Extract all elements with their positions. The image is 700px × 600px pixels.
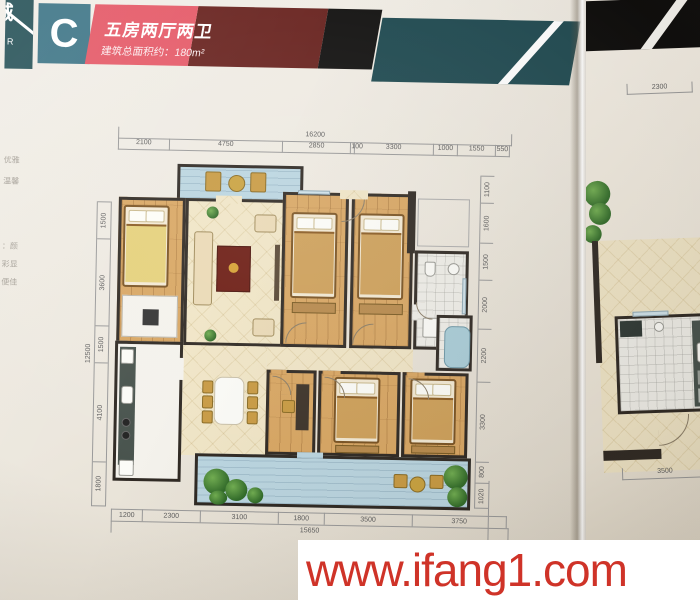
plan-title: 五房两厅两卫 — [103, 15, 196, 42]
chair — [393, 474, 407, 488]
margin-note: ：颜 — [2, 240, 18, 251]
dim-label: 1550 — [458, 144, 496, 157]
dim-label: 4100 — [93, 363, 108, 462]
dim-label: 15650 — [300, 527, 320, 534]
dim-label: 800 — [476, 463, 489, 483]
left-page-content: 城 R C 五房两厅两卫 建筑总面积约：180m² — [0, 0, 586, 600]
window — [298, 190, 330, 195]
watermark: www.ifang1.com — [298, 540, 700, 600]
room-kitchen — [112, 341, 183, 482]
dim-right-segments: 1100 1600 1500 2000 2200 3300 800 1020 — [474, 176, 494, 509]
dim-right-page-top: 2300 — [626, 82, 692, 95]
right-page: 2300 3500 — [586, 0, 700, 600]
washer — [119, 460, 134, 476]
unit-letter: C — [49, 11, 79, 57]
tv-cabinet — [274, 245, 280, 301]
ac-platform — [417, 198, 470, 247]
band-stripe — [631, 0, 694, 52]
unit-letter-block: C — [38, 3, 91, 64]
rug — [292, 302, 336, 314]
rug — [335, 445, 379, 454]
round-table — [228, 175, 245, 192]
dim-label: 1800 — [279, 512, 325, 525]
chair — [250, 172, 266, 192]
margin-note: 温馨 — [3, 175, 19, 186]
dim-label: 1500 — [479, 243, 493, 280]
plant — [447, 487, 467, 507]
plant — [589, 202, 612, 225]
balcony-door-gap — [216, 196, 242, 204]
dim-label: 4750 — [169, 139, 283, 153]
dim-label: 3300 — [354, 142, 433, 156]
plant — [225, 479, 247, 501]
plan-subtitle: 建筑总面积约：180m² — [100, 43, 192, 60]
dim-label: 2300 — [143, 509, 201, 522]
room-balcony-bottom — [194, 453, 471, 510]
door-gap — [323, 371, 341, 376]
chair — [202, 410, 213, 423]
wall — [407, 191, 416, 253]
table-decor — [229, 263, 239, 273]
header-band: C 五房两厅两卫 建筑总面积约：180m² — [37, 3, 578, 93]
dining-table — [214, 377, 245, 426]
door-gap — [297, 452, 323, 458]
plant — [207, 206, 219, 218]
room-bathroom-2 — [436, 315, 473, 372]
chair — [202, 395, 213, 408]
hallway — [267, 347, 413, 373]
brand-logo-icon: 城 R — [4, 0, 33, 69]
round-table — [409, 476, 425, 492]
kitchen-sink — [121, 386, 133, 404]
dim-label: 1500 — [97, 201, 111, 239]
plant — [443, 465, 467, 489]
fridge — [121, 349, 134, 364]
dim-label: 2850 — [283, 141, 352, 154]
band-pink: 五房两厅两卫 建筑总面积约：180m² — [85, 4, 199, 66]
chair — [247, 396, 258, 409]
door-gap — [407, 372, 425, 377]
dim-label: 3600 — [95, 239, 110, 326]
room-kitchen-right — [615, 313, 700, 414]
dim-label: 1800 — [92, 462, 106, 506]
kitchen-counter — [118, 347, 136, 465]
rug — [411, 445, 455, 454]
desk — [296, 384, 310, 430]
rug — [359, 303, 403, 315]
dim-right-page-bottom: 3500 — [622, 465, 700, 480]
chair — [202, 380, 213, 393]
dim-label: 3300 — [476, 383, 491, 463]
chair — [282, 400, 295, 413]
dim-label: 550 — [496, 145, 510, 157]
watermark-url: www.ifang1.com — [298, 543, 627, 597]
wardrobe — [121, 295, 178, 338]
chair — [247, 381, 258, 394]
dim-label: 2300 — [652, 83, 668, 91]
dim-label: 2000 — [478, 280, 492, 329]
door-gap — [178, 358, 183, 380]
dim-label: 16200 — [305, 131, 325, 138]
kettle — [654, 322, 664, 332]
chair — [429, 475, 443, 489]
band-black-right — [586, 0, 700, 52]
logo-mark: R — [7, 37, 14, 47]
margin-note: 优雅 — [4, 154, 20, 165]
dim-label: 1020 — [475, 483, 488, 509]
bathtub — [444, 326, 471, 368]
dim-label: 3500 — [657, 467, 673, 475]
cabinet-box — [142, 309, 158, 325]
bed — [357, 213, 405, 300]
dim-label: 1600 — [480, 204, 494, 244]
band-teal-dark — [371, 18, 580, 86]
logo-char: 城 — [4, 0, 13, 26]
chair — [205, 171, 221, 191]
brochure-photo: 城 R C 五房两厅两卫 建筑总面积约：180m² — [0, 0, 700, 600]
wall — [603, 449, 661, 461]
kitchen-sink — [697, 342, 700, 362]
armchair — [254, 214, 276, 232]
coffee-table-rug — [216, 246, 251, 293]
dim-label: 1000 — [433, 144, 458, 156]
plant — [209, 490, 227, 504]
right-page-content: 2300 3500 — [586, 0, 700, 600]
margin-note: 彩显 — [2, 258, 18, 269]
dim-label: 2100 — [118, 138, 170, 151]
chair — [247, 411, 258, 424]
room-dining — [181, 345, 267, 457]
dim-label: 2200 — [477, 329, 491, 383]
room-living — [183, 198, 286, 347]
band-black — [318, 9, 383, 70]
armchair — [252, 318, 274, 336]
plant — [204, 329, 216, 341]
band-stripe — [486, 18, 571, 86]
margin-note: 便佳 — [1, 276, 17, 287]
dim-label: 1500 — [95, 326, 109, 363]
dim-label: 1200 — [111, 509, 143, 522]
stove-counter — [620, 320, 643, 337]
bed — [290, 212, 338, 299]
plant — [247, 487, 263, 503]
sink — [448, 263, 460, 275]
toilet — [424, 262, 435, 277]
bed — [122, 205, 170, 288]
door-gap — [271, 370, 287, 375]
left-page: 城 R C 五房两厅两卫 建筑总面积约：180m² — [0, 0, 586, 600]
dim-label: 1100 — [481, 176, 495, 205]
sofa — [193, 231, 213, 305]
window — [462, 278, 467, 314]
